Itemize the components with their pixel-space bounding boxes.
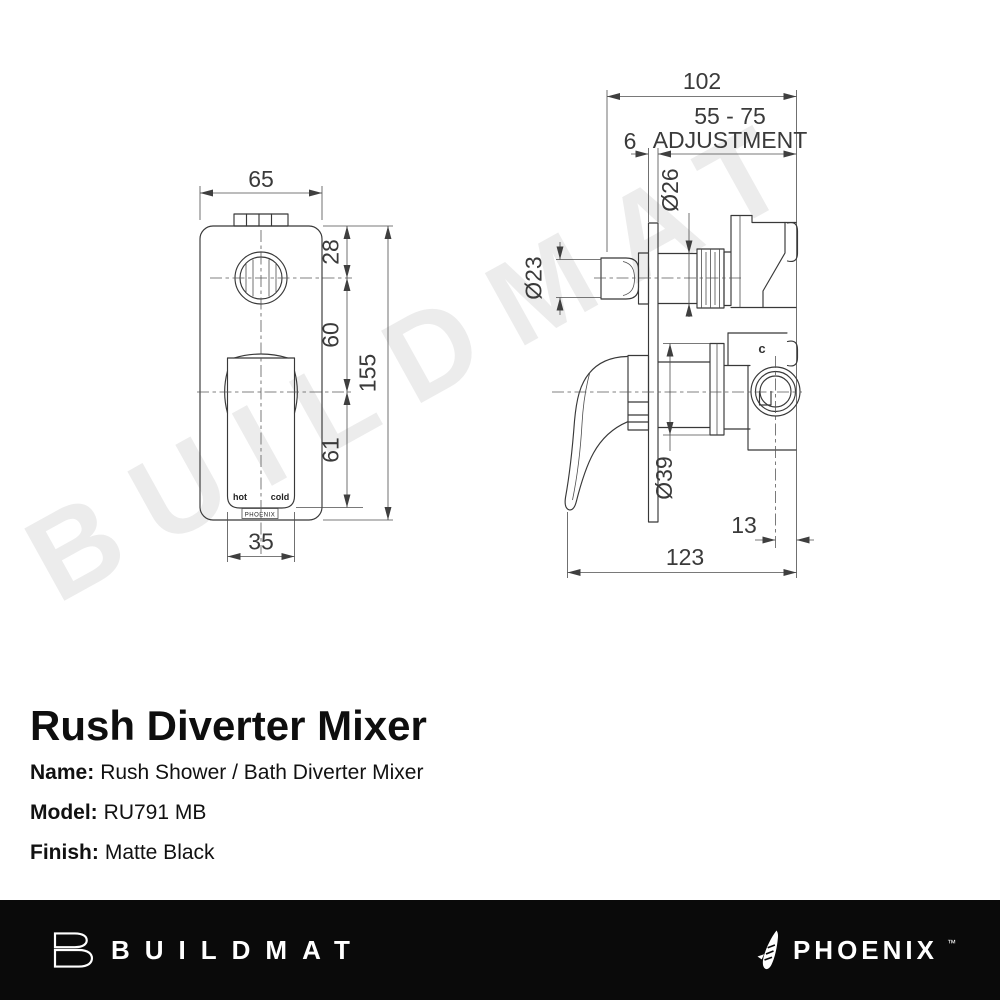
phoenix-icon <box>756 930 784 970</box>
page-title: Rush Diverter Mixer <box>30 702 427 750</box>
dim-flange-dia-39: Ø39 <box>651 456 677 499</box>
front-brand-text: PHOENIX <box>245 513 276 519</box>
spec-model-value: RU791 MB <box>104 801 207 824</box>
hot-label: hot <box>233 492 247 502</box>
phoenix-trademark: ™ <box>947 938 956 948</box>
dim-outlet-offset-13: 13 <box>731 512 757 538</box>
dim-adjustment-word: ADJUSTMENT <box>653 127 808 153</box>
dim-61: 61 <box>318 437 344 463</box>
cold-label: cold <box>271 492 290 502</box>
dim-plate-thickness-6: 6 <box>624 128 637 154</box>
phoenix-wordmark: PHOENIX <box>793 937 938 963</box>
spec-finish-value: Matte Black <box>105 841 215 864</box>
dim-handle-width-35: 35 <box>248 529 274 555</box>
cold-inlet-marker: c <box>758 341 765 356</box>
spec-model-label: Model: <box>30 801 98 824</box>
dim-height-155: 155 <box>355 354 381 392</box>
front-mounting-tab <box>234 214 288 226</box>
side-lever-assembly <box>565 333 800 510</box>
spec-finish-label: Finish: <box>30 841 99 864</box>
dim-shaft-dia-26: Ø26 <box>657 168 683 211</box>
dim-adjustment-range: 55 - 75 <box>694 103 766 129</box>
buildmat-logo: BUILDMAT <box>52 932 365 968</box>
spec-name-value: Rush Shower / Bath Diverter Mixer <box>100 761 423 784</box>
buildmat-icon <box>52 932 94 968</box>
spec-finish: Finish:Matte Black <box>30 841 215 865</box>
side-diverter-assembly <box>601 216 798 309</box>
dim-total-depth-123: 123 <box>666 544 704 570</box>
footer-bar: BUILDMAT PHOENIX ™ <box>0 900 1000 1000</box>
dim-depth-102: 102 <box>683 68 721 94</box>
spec-name: Name:Rush Shower / Bath Diverter Mixer <box>30 761 423 785</box>
dim-60: 60 <box>318 322 344 348</box>
side-view: c 102 55 - 75 ADJUSTMENT 6 Ø26 Ø <box>521 68 815 578</box>
spec-name-label: Name: <box>30 761 94 784</box>
spec-model: Model:RU791 MB <box>30 801 206 825</box>
dim-width-65: 65 <box>248 166 274 192</box>
front-view: hot cold PHOENIX 65 28 60 61 155 35 <box>197 166 393 562</box>
dim-button-dia-23: Ø23 <box>521 256 547 299</box>
dim-28: 28 <box>318 239 344 265</box>
phoenix-logo: PHOENIX ™ <box>756 930 956 970</box>
buildmat-wordmark: BUILDMAT <box>111 937 365 963</box>
